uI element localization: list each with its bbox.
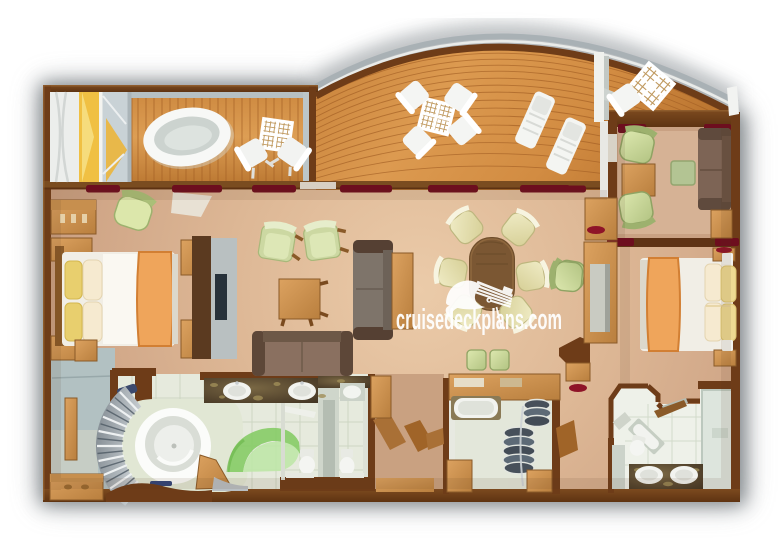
svg-text:cruisedeckplans.com: cruisedeckplans.com <box>396 304 562 336</box>
